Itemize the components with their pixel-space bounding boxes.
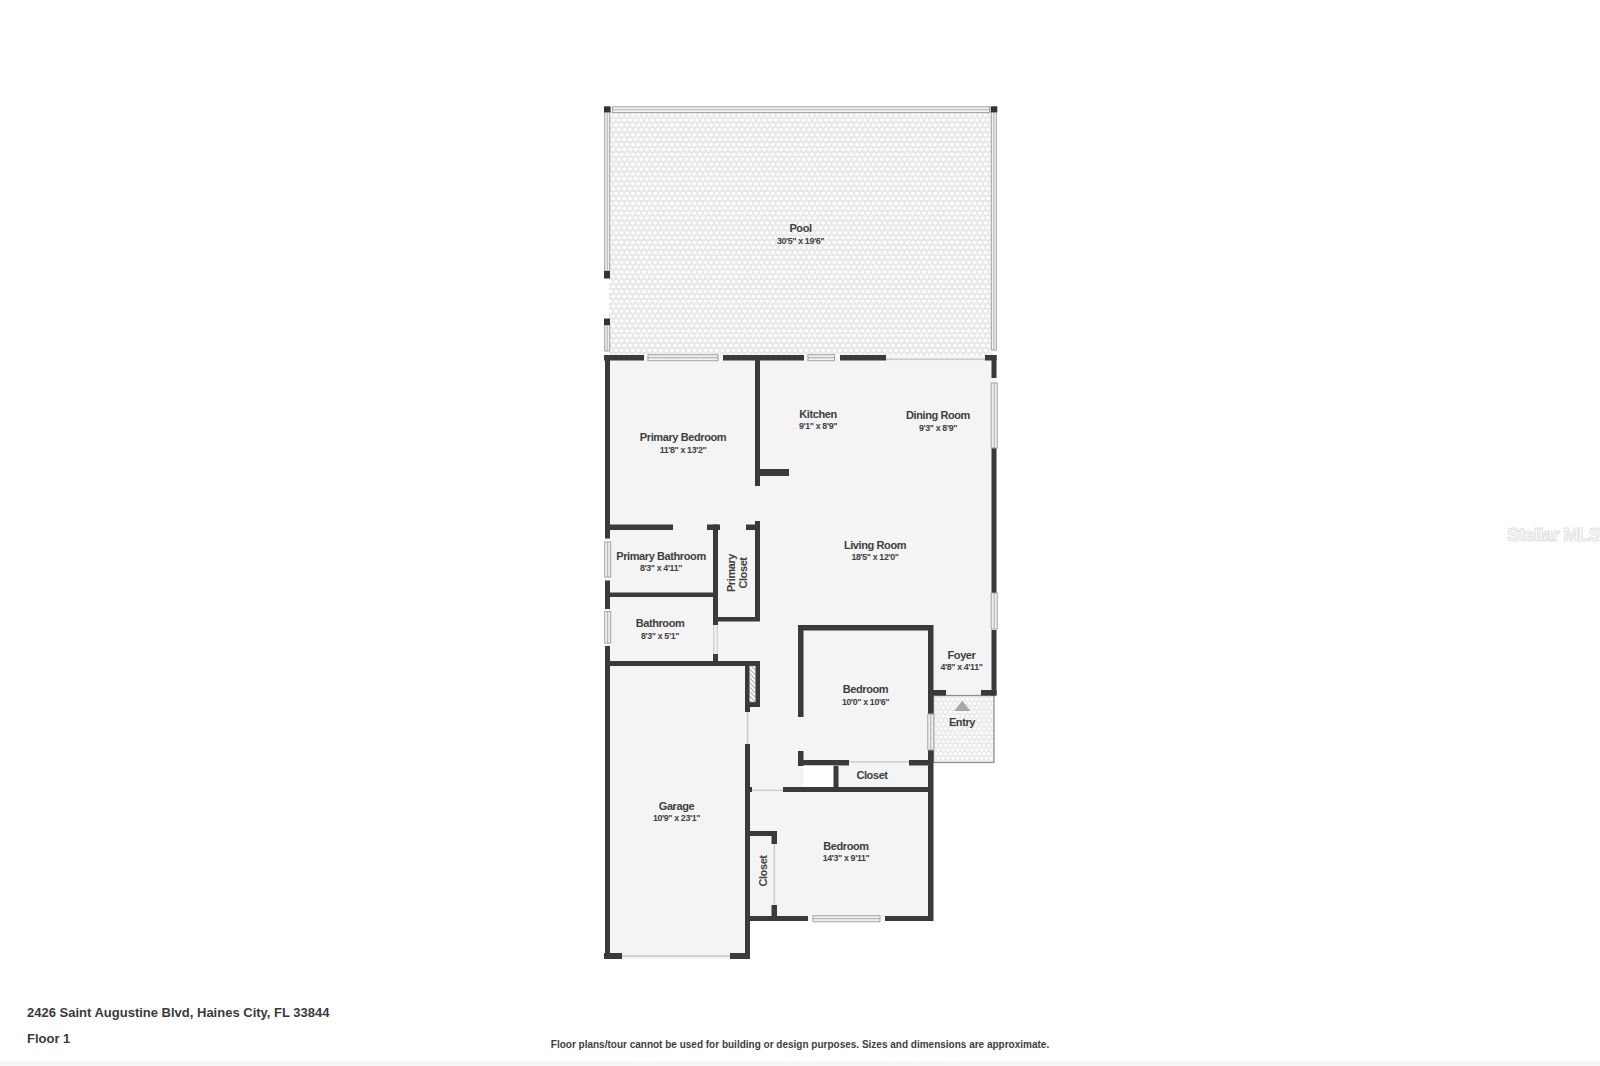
svg-text:9'1" x 8'9": 9'1" x 8'9" [799,421,837,431]
svg-text:Bedroom: Bedroom [843,683,889,695]
svg-text:8'3" x 4'11": 8'3" x 4'11" [640,563,682,573]
svg-text:4'8" x 4'11": 4'8" x 4'11" [940,662,982,672]
svg-text:Floor plans/tour cannot be use: Floor plans/tour cannot be used for buil… [551,1039,1050,1050]
svg-text:Living Room: Living Room [844,539,907,551]
svg-text:14'3" x 9'11": 14'3" x 9'11" [823,853,870,863]
svg-text:Primary Bedroom: Primary Bedroom [640,431,727,443]
svg-text:Foyer: Foyer [948,649,977,661]
svg-text:Kitchen: Kitchen [799,408,837,420]
svg-text:11'8" x 13'2": 11'8" x 13'2" [660,445,707,455]
svg-text:Pool: Pool [789,222,812,234]
svg-text:Bathroom: Bathroom [636,617,685,629]
svg-text:Primary Bathroom: Primary Bathroom [616,550,706,562]
svg-text:9'3" x 8'9": 9'3" x 8'9" [919,423,957,433]
svg-text:Closet: Closet [757,855,769,887]
svg-text:Entry: Entry [949,716,976,728]
svg-text:Closet: Closet [737,557,749,589]
svg-text:Primary: Primary [725,553,737,592]
svg-text:30'5" x 19'6": 30'5" x 19'6" [777,236,824,246]
svg-text:8'3" x 5'1": 8'3" x 5'1" [641,631,679,641]
svg-text:Stellar MLS: Stellar MLS [1507,524,1600,545]
svg-text:18'5" x 12'0": 18'5" x 12'0" [851,552,898,562]
svg-text:Floor 1: Floor 1 [27,1031,70,1046]
svg-text:Bedroom: Bedroom [823,840,869,852]
svg-text:Dining Room: Dining Room [906,409,971,421]
svg-text:10'0" x 10'6": 10'0" x 10'6" [842,697,889,707]
svg-text:2426 Saint Augustine Blvd, Hai: 2426 Saint Augustine Blvd, Haines City, … [27,1005,330,1020]
svg-text:10'9" x 23'1": 10'9" x 23'1" [653,813,700,823]
svg-text:Closet: Closet [856,769,888,781]
svg-text:Garage: Garage [659,800,695,812]
